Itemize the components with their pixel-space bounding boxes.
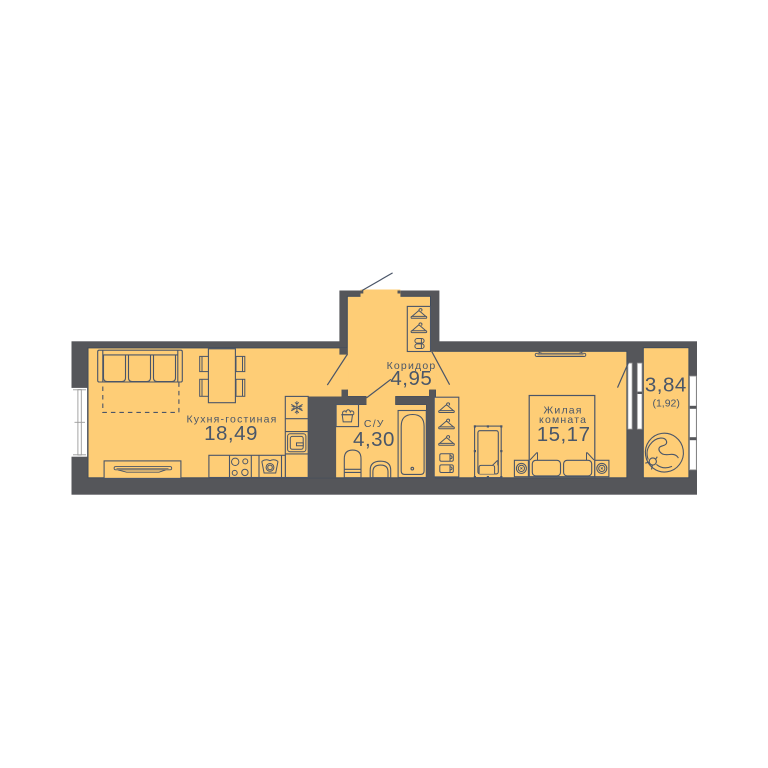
svg-text:4,30: 4,30 (353, 428, 395, 451)
svg-text:3,84: 3,84 (645, 374, 687, 397)
svg-text:4,95: 4,95 (390, 367, 432, 390)
svg-text:15,17: 15,17 (537, 423, 591, 446)
svg-text:(1,92): (1,92) (652, 397, 679, 409)
svg-text:18,49: 18,49 (204, 422, 258, 445)
